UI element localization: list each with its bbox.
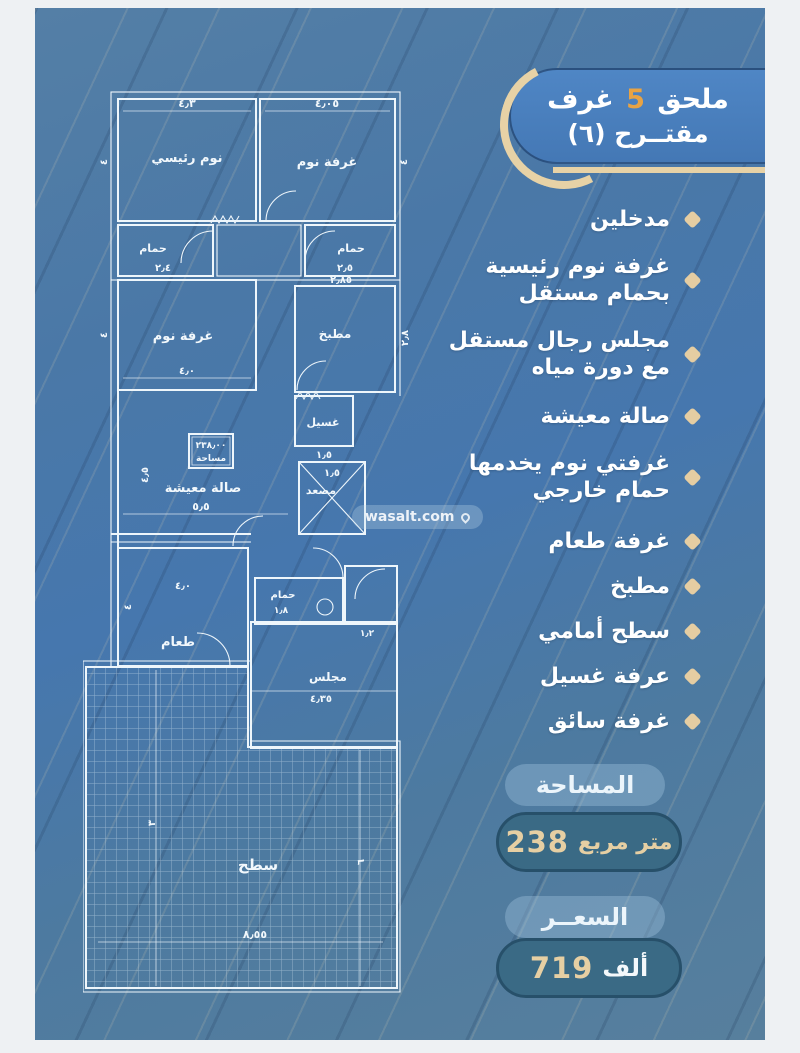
price-value-pill: 719 ألف — [496, 938, 682, 998]
area-label-pill: المساحة — [505, 764, 665, 806]
dimension-label: ٤٫٠ — [179, 366, 195, 377]
diamond-bullet-icon — [683, 667, 701, 685]
room-label-dining: طعام — [161, 635, 195, 650]
watermark: wasalt.com — [352, 505, 483, 529]
diamond-bullet-icon — [683, 210, 701, 228]
dimension-label: ١٫٥ — [316, 450, 332, 461]
room-label-majlis: مجلس — [309, 670, 347, 684]
room-entry — [345, 566, 397, 624]
diamond-bullet-icon — [683, 407, 701, 425]
room-label-kitchen: مطبخ — [319, 327, 352, 341]
list-item: مجلس رجال مستقل مع دورة مياه — [449, 327, 699, 381]
list-item: غرفة نوم رئيسية بحمام مستقل — [485, 253, 699, 307]
price-unit: ألف — [602, 954, 648, 982]
room-label-master-bedroom: نوم رئيسي — [151, 151, 222, 166]
area-number: 238 — [505, 825, 569, 859]
list-item: غرفة سائق — [548, 708, 699, 735]
diamond-bullet-icon — [683, 622, 701, 640]
dimension-label: ١٫٥ — [324, 468, 340, 479]
door-arc — [266, 191, 296, 221]
wc-fixture — [317, 599, 333, 615]
area-box-value: ٢٣٨٫٠٠ — [196, 441, 227, 451]
diamond-bullet-icon — [683, 271, 701, 289]
dimension-label: ٦ — [356, 859, 367, 865]
badge-title: ملحق 5 غرف — [547, 84, 729, 115]
dimension-label: ٤٫٣٥ — [310, 694, 332, 705]
door-arc — [305, 231, 335, 261]
listing-image-card: ملحق 5 غرف مقتــرح (٦) مدخلين غرفة نوم ر… — [35, 8, 765, 1040]
dimension-label: ٢٫٨ — [400, 330, 411, 346]
list-item: غرفتي نوم يخدمها حمام خارجي — [469, 450, 699, 504]
dimension-label: ٢٫٨٥ — [330, 275, 352, 286]
room-label-laundry: غسيل — [306, 416, 339, 429]
dimension-label: ٨٫٥٥ — [243, 928, 268, 941]
list-item: مطبخ — [610, 573, 699, 600]
area-unit: متر مربع — [578, 830, 673, 855]
diamond-bullet-icon — [683, 577, 701, 595]
door-arc — [313, 548, 343, 578]
dimension-label: ٤ — [123, 604, 134, 610]
room-label-bath-2: حمام — [337, 242, 365, 255]
diamond-bullet-icon — [683, 345, 701, 363]
watermark-text: wasalt.com — [365, 509, 454, 525]
room-majlis — [251, 622, 397, 748]
door-arc — [355, 569, 385, 599]
area-box-label: مساحة — [196, 454, 226, 464]
list-item: غرفة طعام — [548, 528, 699, 555]
dimension-label: ٢٫٥ — [337, 263, 353, 274]
door-arc — [181, 231, 213, 263]
dimension-label: ٤٫٠ — [175, 581, 191, 592]
room-label-bath-1: حمام — [139, 242, 167, 255]
dimension-label: ٤ — [99, 332, 110, 338]
room-label-elevator: مصعد — [306, 484, 336, 497]
lobby — [217, 225, 301, 276]
price-label-pill: السعــر — [505, 896, 665, 938]
diamond-bullet-icon — [683, 468, 701, 486]
list-item: صالة معيشة — [540, 403, 699, 430]
door-arc — [297, 361, 326, 390]
dimension-label: ٣ — [147, 820, 158, 826]
dimension-label: ٤ — [99, 159, 110, 165]
room-label-bedroom-3: غرفة نوم — [153, 329, 213, 344]
dimension-label: ٤٫٥ — [140, 467, 151, 483]
dimension-label: ٥٫٥ — [192, 500, 210, 513]
dimension-label: ٤ — [399, 159, 410, 165]
proposal-badge: ملحق 5 غرف مقتــرح (٦) — [509, 68, 765, 164]
list-item: سطح أمامي — [538, 618, 699, 645]
badge-proposal-number: مقتــرح (٦) — [567, 119, 708, 148]
list-item: مدخلين — [590, 206, 699, 233]
diamond-bullet-icon — [683, 532, 701, 550]
rooms-count: 5 — [623, 84, 648, 115]
diamond-bullet-icon — [683, 712, 701, 730]
dimension-label: ٤٫٠٥ — [315, 97, 340, 110]
feature-list: مدخلين غرفة نوم رئيسية بحمام مستقل مجلس … — [449, 206, 699, 735]
floor-plan-blueprint: ٢٣٨٫٠٠ مساحة نوم رئيسي ٤٫٣ ٤ غرفة نوم ٤٫… — [83, 90, 423, 995]
dimension-label: ١٫٨ — [274, 606, 289, 616]
dimension-label: ٢٫٤ — [155, 263, 171, 274]
room-label-bath-3: حمام — [271, 590, 296, 601]
room-label-living: صالة معيشة — [165, 481, 242, 496]
price-number: 719 — [530, 951, 594, 985]
list-item: عرفة غسيل — [540, 663, 699, 690]
area-value-pill: 238 متر مربع — [496, 812, 682, 872]
location-pin-icon — [460, 511, 473, 524]
room-label-bedroom-2: غرفة نوم — [297, 155, 357, 170]
dimension-label: ٤٫٣ — [178, 97, 196, 110]
room-label-roof: سطح — [238, 856, 278, 874]
dimension-label: ١٫٢ — [360, 629, 375, 639]
